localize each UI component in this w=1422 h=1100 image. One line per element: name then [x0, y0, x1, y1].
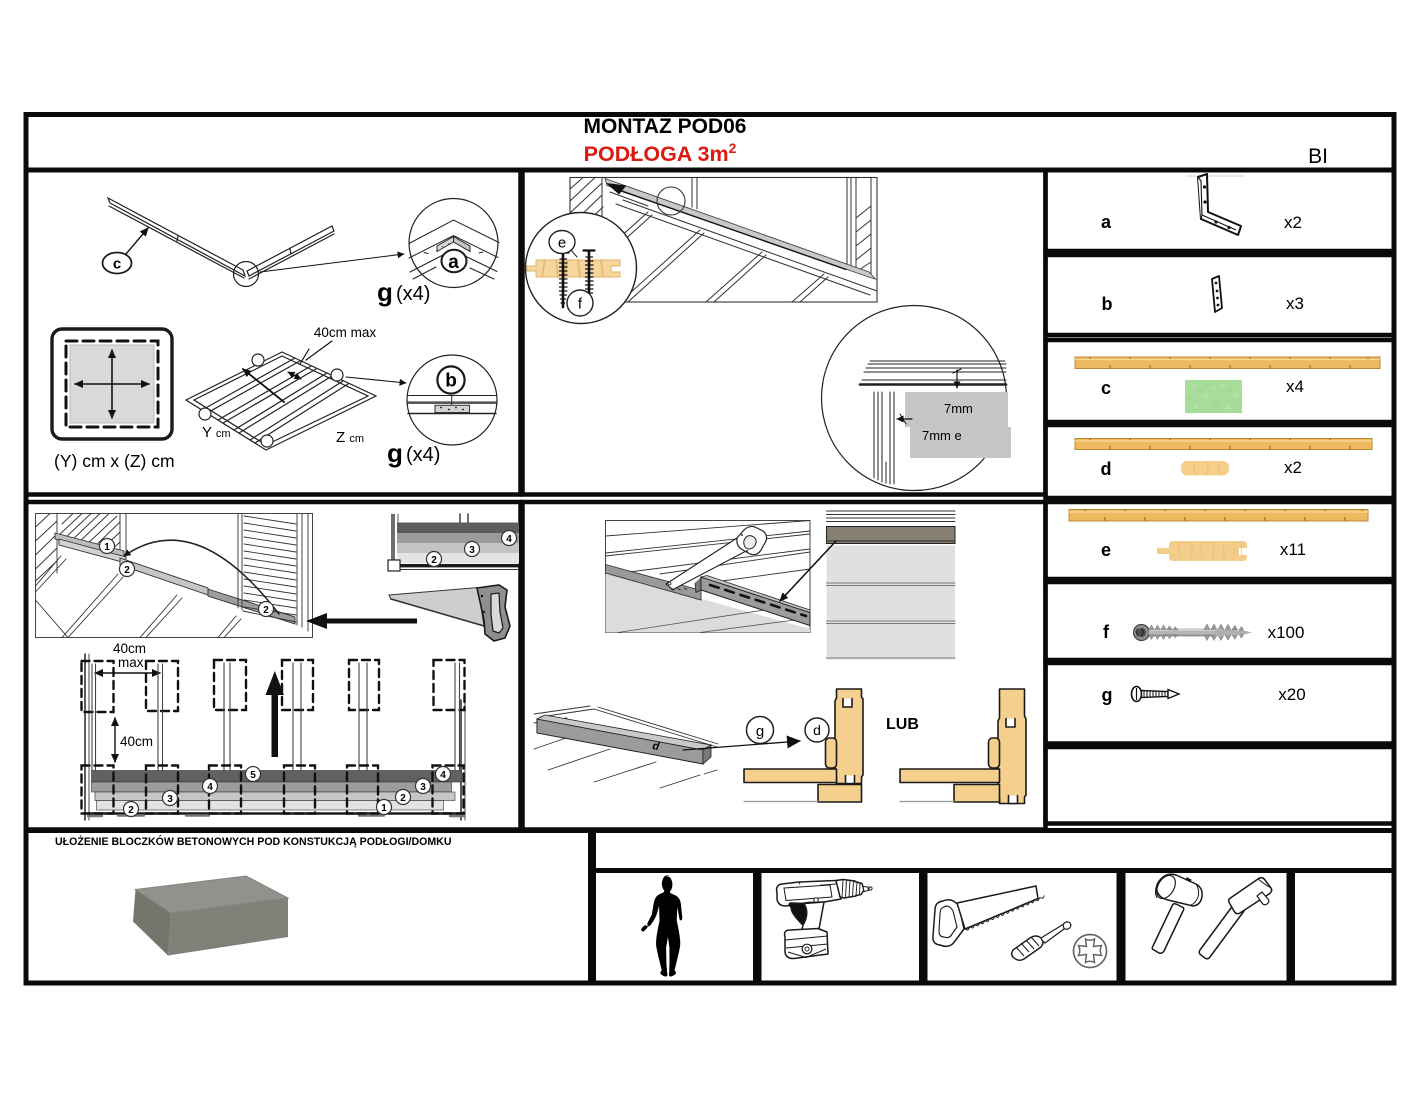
svg-text:a: a: [1101, 212, 1112, 232]
svg-text:7mm e: 7mm e: [922, 428, 962, 443]
svg-text:x3: x3: [1286, 294, 1304, 313]
svg-text:40cm max: 40cm max: [314, 325, 377, 340]
svg-text:BI: BI: [1308, 145, 1328, 168]
svg-text:d: d: [1101, 459, 1112, 479]
svg-text:b: b: [445, 371, 457, 392]
svg-text:MONTAŻ POD06: MONTAŻ POD06: [584, 115, 747, 138]
svg-text:c: c: [1101, 378, 1111, 398]
svg-text:e: e: [558, 235, 566, 252]
svg-text:(x4): (x4): [406, 444, 440, 466]
svg-text:40cm: 40cm: [120, 734, 153, 749]
svg-text:(Y) cm x (Z) cm: (Y) cm x (Z) cm: [54, 451, 175, 471]
svg-text:PODŁOGA 3m2: PODŁOGA 3m2: [584, 140, 737, 166]
svg-text:b: b: [1102, 294, 1113, 314]
svg-text:g: g: [387, 438, 403, 468]
svg-text:3: 3: [469, 545, 475, 556]
svg-text:max: max: [118, 655, 144, 670]
svg-text:g: g: [1102, 685, 1113, 705]
svg-text:40cm: 40cm: [113, 641, 146, 656]
svg-text:f: f: [1103, 622, 1110, 642]
svg-text:2: 2: [124, 565, 130, 576]
svg-text:UŁOŻENIE BLOCZKÓW BETONOWYCH P: UŁOŻENIE BLOCZKÓW BETONOWYCH POD KONSTUK…: [55, 835, 451, 848]
svg-text:7mm: 7mm: [944, 401, 973, 416]
svg-text:3: 3: [420, 782, 426, 793]
svg-text:4: 4: [440, 770, 446, 781]
svg-text:d: d: [813, 722, 821, 738]
svg-text:g: g: [377, 277, 393, 307]
svg-text:1: 1: [104, 542, 110, 553]
svg-text:(x4): (x4): [396, 283, 430, 305]
svg-text:4: 4: [506, 534, 512, 545]
svg-text:x4: x4: [1286, 377, 1304, 396]
svg-text:x11: x11: [1280, 540, 1306, 559]
svg-text:2: 2: [400, 793, 406, 804]
svg-text:x20: x20: [1278, 685, 1305, 704]
svg-text:g: g: [756, 723, 764, 740]
svg-text:a: a: [448, 252, 459, 273]
svg-text:2: 2: [263, 605, 269, 616]
svg-text:2: 2: [128, 805, 134, 816]
svg-text:2: 2: [431, 555, 437, 566]
svg-text:x2: x2: [1284, 213, 1302, 232]
svg-text:c: c: [113, 256, 121, 273]
svg-text:1: 1: [381, 803, 387, 814]
svg-text:5: 5: [250, 770, 256, 781]
svg-text:3: 3: [167, 794, 173, 805]
svg-text:e: e: [1101, 540, 1111, 560]
svg-text:x100: x100: [1268, 623, 1305, 642]
svg-text:LUB: LUB: [886, 716, 919, 733]
svg-text:x2: x2: [1284, 458, 1302, 477]
svg-text:4: 4: [207, 782, 213, 793]
